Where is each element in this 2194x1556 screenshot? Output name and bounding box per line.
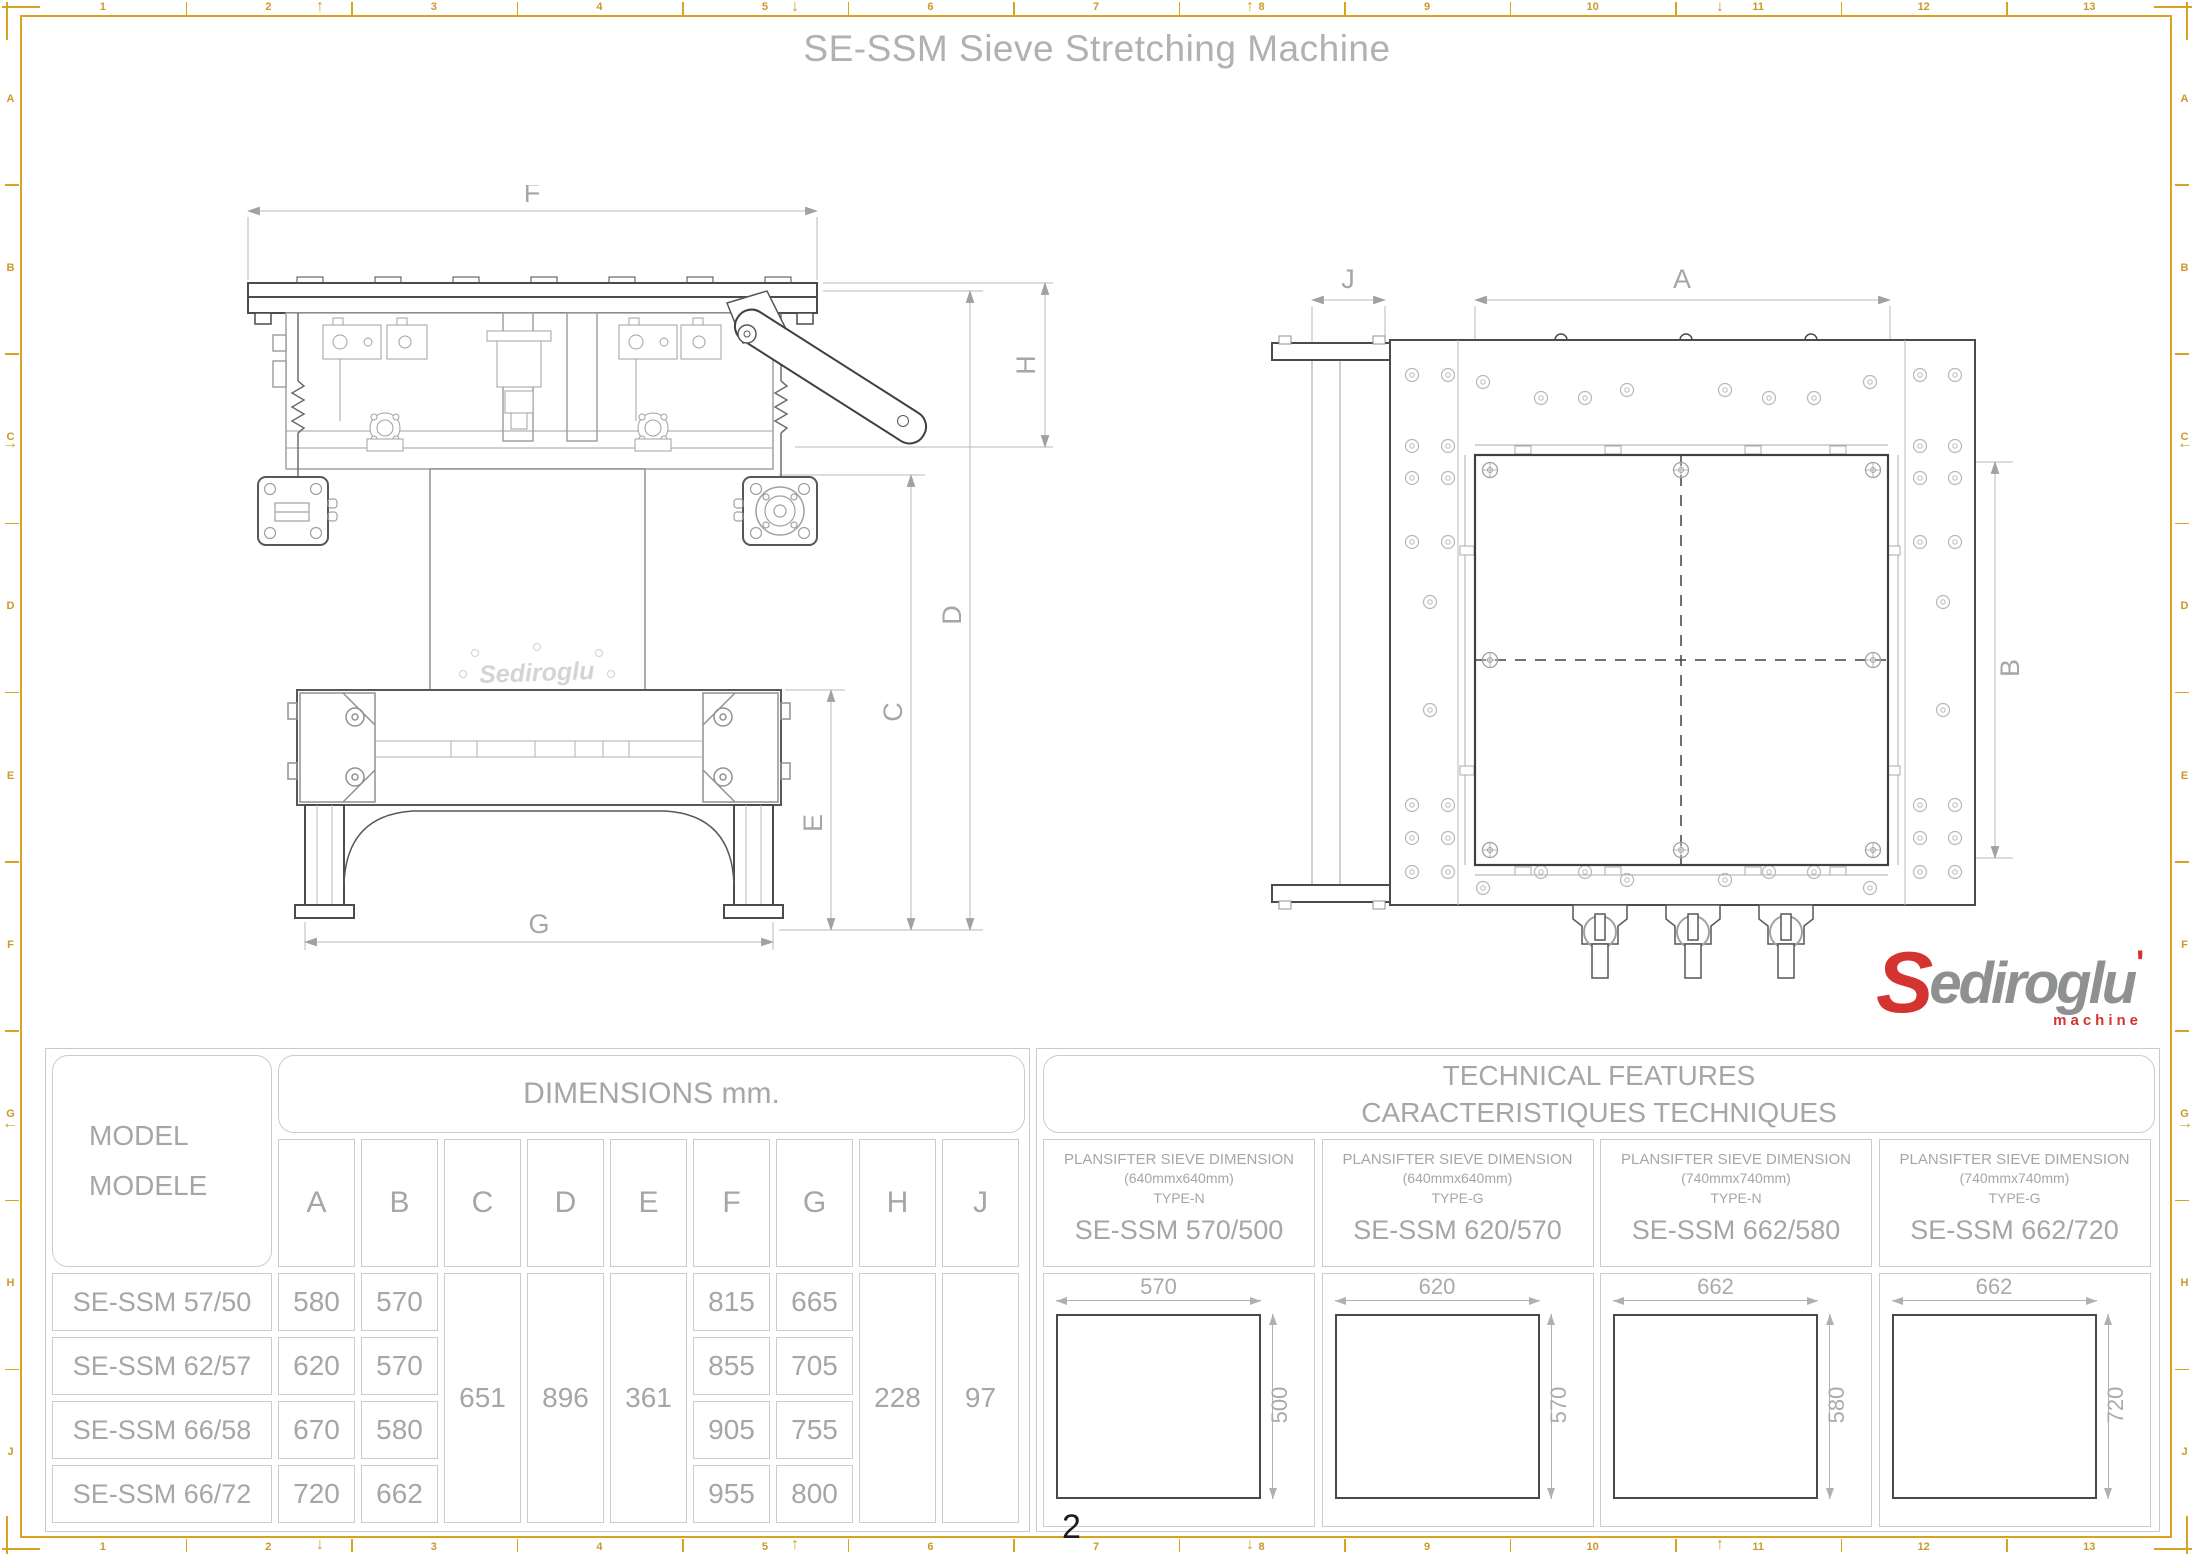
dim-label-E: E <box>798 814 828 832</box>
legs <box>295 805 783 918</box>
tech-line1: PLANSIFTER SIEVE DIMENSION <box>1342 1150 1572 1169</box>
ruler-col-number: 1 <box>88 1541 118 1553</box>
dim-label-A: A <box>1673 264 1691 294</box>
ruler-tick <box>186 1539 188 1552</box>
tech-line2: (740mmx740mm) <box>1681 1169 1791 1187</box>
dim-value: 570 <box>361 1273 438 1331</box>
dim-value: 620 <box>278 1337 355 1395</box>
feed-strip <box>1272 336 1400 909</box>
dim-value-merged: 896 <box>527 1273 604 1523</box>
tech-line2: (640mmx640mm) <box>1124 1169 1234 1187</box>
ruler-tick <box>2175 692 2189 694</box>
ruler-col-number: 12 <box>1909 1 1939 13</box>
fold-mark: ↓ <box>786 0 804 17</box>
ruler-tick <box>848 2 850 15</box>
ruler-tick <box>351 1539 353 1552</box>
sieve-width-label: 662 <box>1613 1274 1818 1300</box>
sieve-height-label: 580 <box>1824 1375 1850 1435</box>
dim-value-merged: 228 <box>859 1273 936 1523</box>
dimensions-table: MODEL MODELE DIMENSIONS mm. A B C D E F … <box>45 1048 1030 1532</box>
ruler-tick <box>2175 184 2189 186</box>
ruler-col-number: 11 <box>1743 1541 1773 1553</box>
ruler-tick <box>2175 861 2189 863</box>
ruler-tick <box>2006 2 2008 15</box>
tech-model-name: SE-SSM 662/720 <box>1910 1215 2119 1246</box>
ruler-row-letter: D <box>2177 600 2192 612</box>
right-drive-unit <box>734 477 817 545</box>
left-drive-unit <box>258 477 337 545</box>
ruler-tick <box>1344 2 1346 15</box>
corner-mark <box>2154 1548 2192 1550</box>
ruler-tick <box>2175 1369 2189 1371</box>
dim-label-J: J <box>1341 264 1355 294</box>
ruler-tick <box>2006 1539 2008 1552</box>
ruler-tick <box>1013 2 1015 15</box>
fold-mark: → <box>2176 1116 2194 1134</box>
ruler-tick <box>2175 353 2189 355</box>
logo-wordmark: ediroglu <box>1929 948 2134 1020</box>
sieve-height-label: 500 <box>1267 1375 1293 1435</box>
ruler-col-number: 6 <box>915 1 945 13</box>
ruler-col-number: 13 <box>2074 1 2104 13</box>
dim-value: 955 <box>693 1465 770 1523</box>
fold-mark: → <box>1 436 19 454</box>
fold-mark: ↑ <box>311 0 329 17</box>
model-name: SE-SSM 66/72 <box>52 1465 272 1523</box>
ruler-tick <box>1179 2 1181 15</box>
ruler-row-letter: A <box>2177 93 2192 105</box>
model-header-en: MODEL <box>89 1111 189 1161</box>
pedestal-emboss: Sediroglu <box>479 657 595 689</box>
page-number: 2 <box>1062 1508 1081 1547</box>
ruler-tick <box>1841 1539 1843 1552</box>
dim-label-F: F <box>524 185 541 208</box>
top-view-drawing: J A B <box>1265 250 2055 980</box>
ruler-tick <box>351 2 353 15</box>
tech-line1: PLANSIFTER SIEVE DIMENSION <box>1621 1150 1851 1169</box>
ruler-col-number: 1 <box>88 1 118 13</box>
ruler-col-number: 9 <box>1412 1541 1442 1553</box>
dim-value: 815 <box>693 1273 770 1331</box>
ruler-row-letter: A <box>3 93 18 105</box>
ruler-tick <box>1510 1539 1512 1552</box>
ruler-col-number: 10 <box>1578 1541 1608 1553</box>
ruler-col-number: 13 <box>2074 1541 2104 1553</box>
tech-col-header: PLANSIFTER SIEVE DIMENSION (640mmx640mm)… <box>1322 1139 1594 1267</box>
technical-features-table: TECHNICAL FEATURES CARACTERISTIQUES TECH… <box>1036 1048 2160 1532</box>
fold-mark: ↑ <box>786 1537 804 1555</box>
sieve-height-label: 720 <box>2103 1375 2129 1435</box>
dim-value: 570 <box>361 1337 438 1395</box>
dim-label-C: C <box>878 702 908 722</box>
tech-line3: TYPE-N <box>1153 1189 1204 1207</box>
tech-header-en: TECHNICAL FEATURES <box>1443 1057 1756 1094</box>
col-letter: A <box>278 1139 355 1267</box>
ruler-row-letter: D <box>3 600 18 612</box>
ruler-tick <box>5 861 19 863</box>
sieve-diagram: 662 720 <box>1879 1273 2151 1527</box>
ruler-row-letter: F <box>3 939 18 951</box>
front-view-drawing: Sediroglu <box>235 185 1085 960</box>
ruler-row-letter: E <box>2177 770 2192 782</box>
ruler-col-number: 9 <box>1412 1 1442 13</box>
ruler-col-number: 6 <box>915 1541 945 1553</box>
sieve-width-dim <box>1892 1300 2097 1301</box>
sieve-width-dim <box>1056 1300 1261 1301</box>
dim-label-G: G <box>528 909 549 939</box>
corner-mark <box>2 1548 40 1550</box>
base-beam <box>288 690 790 805</box>
ruler-tick <box>2175 523 2189 525</box>
dim-value: 905 <box>693 1401 770 1459</box>
sieve-outline <box>1892 1314 2097 1499</box>
tech-line1: PLANSIFTER SIEVE DIMENSION <box>1899 1150 2129 1169</box>
dim-value: 665 <box>776 1273 853 1331</box>
sieve-width-label: 662 <box>1892 1274 2097 1300</box>
ruler-col-number: 2 <box>253 1 283 13</box>
fold-mark: ← <box>1 1116 19 1134</box>
ruler-col-number: 4 <box>584 1 614 13</box>
tech-col-header: PLANSIFTER SIEVE DIMENSION (740mmx740mm)… <box>1879 1139 2151 1267</box>
dim-label-D: D <box>937 605 967 625</box>
ruler-row-letter: J <box>2177 1446 2192 1458</box>
model-header-cell: MODEL MODELE <box>52 1055 272 1267</box>
model-header-fr: MODELE <box>89 1161 207 1211</box>
sieve-width-label: 570 <box>1056 1274 1261 1300</box>
tech-line1: PLANSIFTER SIEVE DIMENSION <box>1064 1150 1294 1169</box>
dim-value-merged: 361 <box>610 1273 687 1523</box>
ruler-col-number: 10 <box>1578 1 1608 13</box>
ruler-tick <box>1179 1539 1181 1552</box>
ruler-col-number: 12 <box>1909 1541 1939 1553</box>
spec-table: MODEL MODELE DIMENSIONS mm. A B C D E F … <box>45 1048 2160 1532</box>
dim-value: 580 <box>278 1273 355 1331</box>
col-letter: D <box>527 1139 604 1267</box>
ruler-row-letter: H <box>2177 1277 2192 1289</box>
ruler-tick <box>5 184 19 186</box>
ruler-col-number: 5 <box>750 1 780 13</box>
ruler-tick <box>2175 1030 2189 1032</box>
dim-label-H: H <box>1011 355 1041 375</box>
fold-mark: ↓ <box>1241 1537 1259 1555</box>
fold-mark: ↑ <box>1241 0 1259 17</box>
tech-line2: (740mmx740mm) <box>1960 1169 2070 1187</box>
sieve-diagram: 570 500 <box>1043 1273 1315 1527</box>
fold-mark: ↑ <box>1711 1537 1729 1555</box>
upper-body-mechanism <box>273 313 773 469</box>
ruler-tick <box>5 523 19 525</box>
ruler-tick <box>517 1539 519 1552</box>
ruler-tick <box>1510 2 1512 15</box>
col-letter: C <box>444 1139 521 1267</box>
model-name: SE-SSM 66/58 <box>52 1401 272 1459</box>
dim-value: 800 <box>776 1465 853 1523</box>
ruler-row-letter: B <box>2177 262 2192 274</box>
col-letter: F <box>693 1139 770 1267</box>
ruler-row-letter: H <box>3 1277 18 1289</box>
sediroglu-logo: S ediroglu ' machine <box>1876 948 2168 1046</box>
ruler-tick <box>1675 1539 1677 1552</box>
dim-value: 855 <box>693 1337 770 1395</box>
ruler-tick <box>2175 1200 2189 1202</box>
ruler-tick <box>517 2 519 15</box>
logo-subtitle: machine <box>2053 1012 2142 1029</box>
tech-header-cell: TECHNICAL FEATURES CARACTERISTIQUES TECH… <box>1043 1055 2155 1133</box>
col-letter: G <box>776 1139 853 1267</box>
pedestal-column: Sediroglu <box>430 469 645 706</box>
ruler-tick <box>682 2 684 15</box>
model-name: SE-SSM 57/50 <box>52 1273 272 1331</box>
fold-mark: ← <box>2176 436 2194 454</box>
ruler-col-number: 3 <box>419 1 449 13</box>
sieve-width-label: 620 <box>1335 1274 1540 1300</box>
corner-mark <box>2 6 40 8</box>
dim-value: 662 <box>361 1465 438 1523</box>
ruler-tick <box>682 1539 684 1552</box>
tech-line2: (640mmx640mm) <box>1403 1169 1513 1187</box>
clamp-handles <box>1573 905 1813 978</box>
ruler-col-number: 5 <box>750 1541 780 1553</box>
col-letter: B <box>361 1139 438 1267</box>
sieve-plate <box>1475 455 1888 865</box>
col-letter: J <box>942 1139 1019 1267</box>
ruler-tick <box>5 353 19 355</box>
dim-label-B: B <box>1995 659 2025 677</box>
ruler-tick <box>1841 2 1843 15</box>
tech-model-name: SE-SSM 662/580 <box>1632 1215 1841 1246</box>
sieve-diagram: 620 570 <box>1322 1273 1594 1527</box>
tech-model-name: SE-SSM 620/570 <box>1353 1215 1562 1246</box>
fold-mark: ↓ <box>1711 0 1729 17</box>
ruler-tick <box>1344 1539 1346 1552</box>
ruler-tick <box>1013 1539 1015 1552</box>
drawing-sheet: 1122334455667788991010111112121313AABBCC… <box>0 0 2194 1556</box>
sieve-outline <box>1335 1314 1540 1499</box>
ruler-tick <box>186 2 188 15</box>
sieve-height-label: 570 <box>1546 1375 1572 1435</box>
dim-value-merged: 651 <box>444 1273 521 1523</box>
tech-line3: TYPE-N <box>1710 1189 1761 1207</box>
ruler-col-number: 3 <box>419 1541 449 1553</box>
dimensions-header-cell: DIMENSIONS mm. <box>278 1055 1025 1133</box>
dim-value: 705 <box>776 1337 853 1395</box>
dim-value: 670 <box>278 1401 355 1459</box>
page-title: SE-SSM Sieve Stretching Machine <box>0 28 2194 70</box>
sieve-outline <box>1613 1314 1818 1499</box>
tech-line3: TYPE-G <box>1431 1189 1483 1207</box>
sieve-outline <box>1056 1314 1261 1499</box>
dim-value-merged: 97 <box>942 1273 1019 1523</box>
ruler-tick <box>5 1200 19 1202</box>
logo-trademark: ' <box>2136 948 2144 978</box>
corner-mark <box>2154 6 2192 8</box>
sieve-diagram: 662 580 <box>1600 1273 1872 1527</box>
ruler-row-letter: B <box>3 262 18 274</box>
tech-col-header: PLANSIFTER SIEVE DIMENSION (740mmx740mm)… <box>1600 1139 1872 1267</box>
ruler-tick <box>5 692 19 694</box>
tech-col-header: PLANSIFTER SIEVE DIMENSION (640mmx640mm)… <box>1043 1139 1315 1267</box>
col-letter: H <box>859 1139 936 1267</box>
ruler-col-number: 4 <box>584 1541 614 1553</box>
ruler-row-letter: E <box>3 770 18 782</box>
logo-s-glyph: S <box>1876 948 1933 1018</box>
ruler-col-number: 7 <box>1081 1 1111 13</box>
ruler-row-letter: J <box>3 1446 18 1458</box>
ruler-row-letter: F <box>2177 939 2192 951</box>
dim-value: 720 <box>278 1465 355 1523</box>
ruler-col-number: 7 <box>1081 1541 1111 1553</box>
sieve-width-dim <box>1335 1300 1540 1301</box>
ruler-tick <box>5 1369 19 1371</box>
fold-mark: ↓ <box>311 1537 329 1555</box>
tech-model-name: SE-SSM 570/500 <box>1075 1215 1284 1246</box>
ruler-col-number: 11 <box>1743 1 1773 13</box>
ruler-tick <box>1675 2 1677 15</box>
ruler-tick <box>848 1539 850 1552</box>
tech-header-fr: CARACTERISTIQUES TECHNIQUES <box>1361 1094 1837 1131</box>
ruler-col-number: 2 <box>253 1541 283 1553</box>
dim-value: 580 <box>361 1401 438 1459</box>
model-name: SE-SSM 62/57 <box>52 1337 272 1395</box>
ruler-tick <box>5 1030 19 1032</box>
dim-value: 755 <box>776 1401 853 1459</box>
sieve-width-dim <box>1613 1300 1818 1301</box>
tech-line3: TYPE-G <box>1988 1189 2040 1207</box>
col-letter: E <box>610 1139 687 1267</box>
